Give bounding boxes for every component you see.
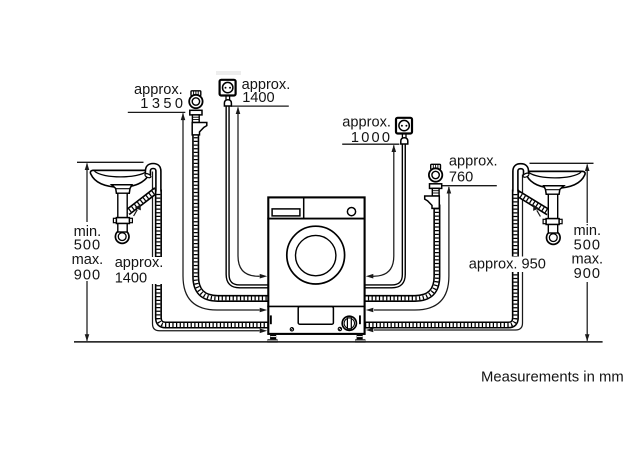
svg-text:Measurements in mm: Measurements in mm	[481, 370, 624, 386]
svg-text:900: 900	[574, 266, 601, 282]
svg-text:1400: 1400	[242, 90, 274, 106]
svg-text:approx. 950: approx. 950	[469, 256, 546, 272]
svg-text:approx.: approx.	[449, 153, 498, 169]
svg-text:max.: max.	[72, 252, 104, 268]
svg-text:900: 900	[74, 267, 101, 283]
svg-text:approx.: approx.	[115, 255, 164, 271]
svg-text:500: 500	[74, 238, 101, 254]
svg-text:760: 760	[449, 169, 473, 185]
svg-text:1400: 1400	[115, 270, 147, 286]
svg-text:max.: max.	[571, 252, 603, 268]
svg-text:1350: 1350	[140, 96, 186, 112]
svg-text:1000: 1000	[351, 130, 392, 146]
svg-text:approx.: approx.	[342, 115, 391, 131]
